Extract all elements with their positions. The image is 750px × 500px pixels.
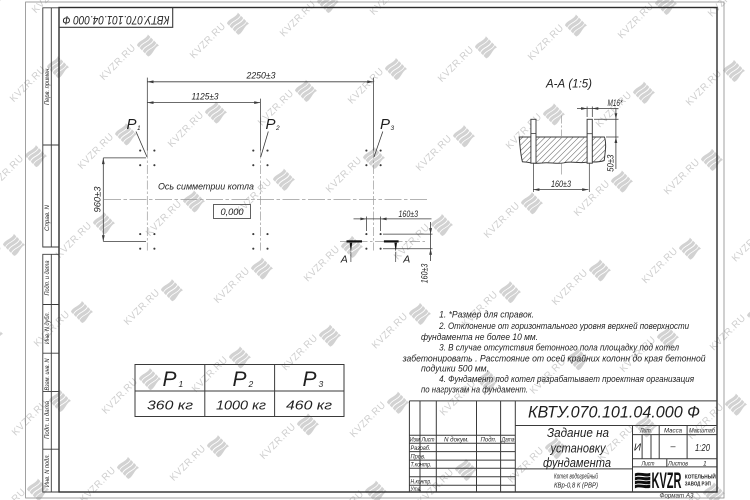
svg-text:KVZR.RU: KVZR.RU bbox=[122, 287, 162, 327]
svg-text:ЗАВОД РЭП: ЗАВОД РЭП bbox=[685, 482, 711, 488]
svg-text:КВТУ.070.101.04.000 Ф: КВТУ.070.101.04.000 Ф bbox=[528, 404, 700, 422]
svg-text:3: 3 bbox=[319, 379, 324, 389]
svg-text:KVZR.RU: KVZR.RU bbox=[0, 242, 4, 282]
svg-text:2: 2 bbox=[275, 125, 280, 132]
svg-text:KVZR.RU: KVZR.RU bbox=[278, 0, 318, 39]
svg-text:Пров.: Пров. bbox=[411, 453, 426, 460]
svg-text:KVZR.RU: KVZR.RU bbox=[100, 376, 140, 416]
svg-text:Лит.: Лит. bbox=[639, 428, 652, 435]
svg-text:2. Отклонение от горизонтальн: 2. Отклонение от горизонтального уровня … bbox=[438, 321, 689, 331]
svg-text:KVZR.RU: KVZR.RU bbox=[348, 400, 388, 440]
svg-text:Задание на: Задание на bbox=[547, 426, 609, 440]
svg-text:KVZR.RU: KVZR.RU bbox=[526, 23, 566, 63]
svg-text:KVZR.RU: KVZR.RU bbox=[32, 309, 72, 349]
svg-text:Т.контр.: Т.контр. bbox=[411, 462, 432, 469]
svg-text:Ось симметрии котла: Ось симметрии котла bbox=[158, 181, 254, 191]
svg-text:Масса: Масса bbox=[664, 428, 683, 435]
svg-text:Масштаб: Масштаб bbox=[689, 428, 715, 435]
svg-text:Лист: Лист bbox=[641, 460, 655, 467]
svg-text:4. Фундамент под котел разраб: 4. Фундамент под котел разрабатывает про… bbox=[439, 374, 694, 384]
svg-text:Листов: Листов bbox=[667, 460, 689, 467]
svg-text:KVZR.RU: KVZR.RU bbox=[190, 354, 230, 394]
svg-text:KVZR.RU: KVZR.RU bbox=[708, 313, 748, 353]
svg-text:Перв. примен.: Перв. примен. bbox=[45, 67, 51, 105]
svg-text:KVZR.RU: KVZR.RU bbox=[482, 200, 522, 240]
svg-text:P: P bbox=[380, 116, 390, 133]
svg-text:P: P bbox=[266, 116, 276, 133]
svg-text:1. *Размер для справок.: 1. *Размер для справок. bbox=[439, 309, 534, 319]
svg-text:KVZR.RU: KVZR.RU bbox=[368, 0, 408, 18]
svg-text:KVZR.RU: KVZR.RU bbox=[302, 244, 342, 284]
svg-text:KVZR.RU: KVZR.RU bbox=[256, 88, 296, 128]
svg-text:160±3: 160±3 bbox=[551, 179, 572, 190]
svg-text:KVZR: KVZR bbox=[652, 468, 682, 493]
svg-text:КВр-0,8 К (РВР): КВр-0,8 К (РВР) bbox=[554, 480, 598, 489]
svg-text:P: P bbox=[302, 368, 316, 391]
svg-text:по нагрузкам на фундамент.: по нагрузкам на фундамент. bbox=[421, 385, 528, 395]
svg-text:KVZR.RU: KVZR.RU bbox=[78, 465, 118, 500]
svg-text:KVZR.RU: KVZR.RU bbox=[212, 265, 252, 305]
svg-text:А: А bbox=[402, 253, 410, 265]
svg-text:KVZR.RU: KVZR.RU bbox=[550, 267, 590, 307]
svg-text:960±3: 960±3 bbox=[92, 186, 103, 213]
svg-text:Справ. N: Справ. N bbox=[45, 204, 51, 231]
svg-text:2: 2 bbox=[248, 379, 254, 389]
svg-text:KVZR.RU: KVZR.RU bbox=[0, 487, 28, 500]
svg-text:КВТУ.070.101.04.000 Ф: КВТУ.070.101.04.000 Ф bbox=[62, 13, 169, 27]
svg-text:P: P bbox=[127, 116, 137, 133]
svg-text:Формат А3: Формат А3 bbox=[660, 493, 695, 500]
svg-text:50±3: 50±3 bbox=[606, 154, 617, 172]
svg-text:KVZR.RU: KVZR.RU bbox=[98, 42, 138, 82]
svg-text:1000 кг: 1000 кг bbox=[216, 398, 267, 413]
svg-text:KVZR.RU: KVZR.RU bbox=[144, 198, 184, 238]
svg-text:160±3: 160±3 bbox=[419, 263, 430, 283]
svg-text:KVZR.RU: KVZR.RU bbox=[8, 64, 48, 104]
svg-text:Подп. и дата: Подп. и дата bbox=[45, 260, 51, 296]
svg-text:1: 1 bbox=[703, 460, 707, 467]
svg-text:фундамента не более 10 мм.: фундамента не более 10 мм. bbox=[421, 332, 538, 342]
svg-text:KVZR.RU: KVZR.RU bbox=[166, 110, 206, 150]
svg-text:KVZR.RU: KVZR.RU bbox=[436, 44, 476, 84]
svg-text:И: И bbox=[634, 442, 642, 453]
svg-text:0,000: 0,000 bbox=[221, 207, 244, 217]
svg-text:KVZR.RU: KVZR.RU bbox=[706, 0, 746, 19]
svg-text:1:20: 1:20 bbox=[695, 442, 710, 454]
svg-text:KVZR.RU: KVZR.RU bbox=[346, 66, 386, 106]
svg-text:KVZR.RU: KVZR.RU bbox=[168, 443, 208, 483]
svg-text:KVZR.RU: KVZR.RU bbox=[76, 131, 116, 171]
svg-text:Н.контр.: Н.контр. bbox=[411, 478, 432, 485]
svg-text:Инв. N дубл.: Инв. N дубл. bbox=[45, 312, 51, 344]
svg-text:КОТЕЛЬНЫЙ: КОТЕЛЬНЫЙ bbox=[685, 473, 716, 481]
svg-text:А-А (1:5): А-А (1:5) bbox=[545, 79, 592, 91]
svg-text:KVZR.RU: KVZR.RU bbox=[504, 111, 544, 151]
svg-text:160±3: 160±3 bbox=[399, 209, 419, 220]
svg-text:Разраб.: Разраб. bbox=[411, 445, 431, 452]
svg-text:KVZR.RU: KVZR.RU bbox=[0, 153, 26, 193]
svg-text:А: А bbox=[340, 253, 348, 265]
svg-text:Взам. инв. N: Взам. инв. N bbox=[45, 358, 51, 391]
svg-text:KVZR.RU: KVZR.RU bbox=[662, 157, 702, 197]
svg-text:1: 1 bbox=[179, 379, 184, 389]
svg-text:подушки 500 мм.: подушки 500 мм. bbox=[421, 363, 489, 373]
svg-text:KVZR.RU: KVZR.RU bbox=[414, 133, 454, 173]
svg-text:P: P bbox=[162, 368, 176, 391]
svg-text:Изм: Изм bbox=[410, 437, 421, 444]
svg-text:360 кг: 360 кг bbox=[147, 398, 194, 413]
svg-text:P: P bbox=[232, 368, 246, 391]
svg-text:забетонировать . Расстояние о: забетонировать . Расстояние от осей край… bbox=[402, 354, 706, 364]
svg-text:фундамента: фундамента bbox=[543, 456, 611, 470]
svg-text:Дата: Дата bbox=[501, 437, 515, 444]
svg-text:Утв.: Утв. bbox=[410, 486, 422, 493]
svg-text:KVZR.RU: KVZR.RU bbox=[730, 224, 750, 264]
svg-text:–: – bbox=[669, 441, 676, 451]
svg-text:KVZR.RU: KVZR.RU bbox=[572, 178, 612, 218]
svg-text:2250±3: 2250±3 bbox=[246, 71, 277, 82]
svg-text:KVZR.RU: KVZR.RU bbox=[640, 246, 680, 286]
svg-text:Инв. N подл.: Инв. N подл. bbox=[45, 454, 51, 487]
svg-text:KVZR.RU: KVZR.RU bbox=[54, 220, 94, 260]
svg-text:Подп. и дата: Подп. и дата bbox=[45, 400, 51, 439]
svg-text:Котел водогрейный: Котел водогрейный bbox=[554, 471, 598, 480]
svg-text:KVZR.RU: KVZR.RU bbox=[258, 421, 298, 461]
svg-text:KVZR.RU: KVZR.RU bbox=[684, 68, 724, 108]
svg-text:3. В случае отсутствия бетонн: 3. В случае отсутствия бетонного пола пл… bbox=[439, 343, 680, 353]
svg-text:Подп.: Подп. bbox=[481, 437, 497, 444]
svg-text:1125±3: 1125±3 bbox=[192, 91, 220, 102]
svg-text:N докум.: N докум. bbox=[444, 437, 469, 444]
svg-text:KVZR.RU: KVZR.RU bbox=[370, 311, 410, 351]
svg-text:M16*: M16* bbox=[608, 98, 623, 108]
svg-text:1: 1 bbox=[137, 125, 141, 132]
svg-text:3: 3 bbox=[391, 125, 395, 132]
svg-text:460 кг: 460 кг bbox=[286, 398, 333, 413]
svg-text:KVZR.RU: KVZR.RU bbox=[594, 90, 634, 130]
svg-text:установку: установку bbox=[550, 442, 607, 456]
svg-text:Лист: Лист bbox=[421, 437, 435, 444]
svg-text:KVZR.RU: KVZR.RU bbox=[324, 155, 364, 195]
svg-text:KVZR.RU: KVZR.RU bbox=[188, 21, 228, 61]
